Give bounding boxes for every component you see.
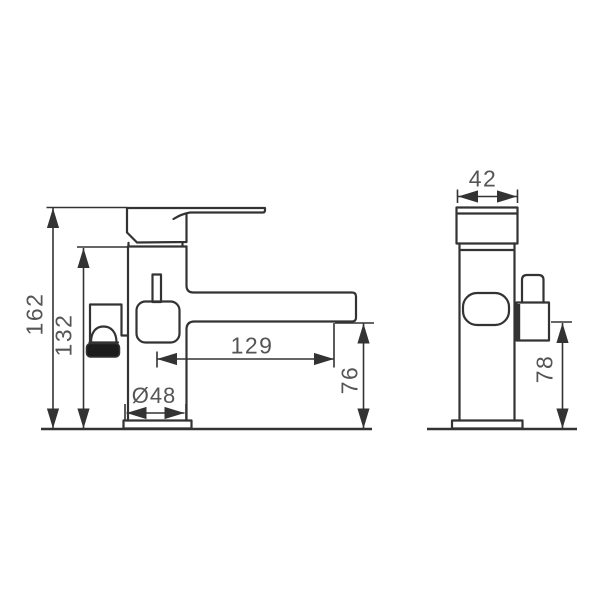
dimension-label-base-diameter: Ø48 bbox=[132, 385, 177, 407]
arrow-48-right bbox=[165, 407, 185, 419]
dimension-label-spout-height: 76 bbox=[339, 366, 362, 395]
arrow-78-top bbox=[556, 323, 568, 343]
sprayer-outline bbox=[90, 305, 128, 344]
technical-drawing-page: 162 132 129 Ø48 76 42 78 bbox=[0, 0, 600, 600]
front-view bbox=[87, 208, 357, 429]
arrow-162-bottom bbox=[47, 409, 59, 429]
technical-drawing bbox=[0, 0, 600, 600]
arrow-132-bottom bbox=[77, 409, 89, 429]
diverter-knob bbox=[137, 302, 180, 343]
spray-holder-clip bbox=[522, 275, 544, 303]
diverter-stem bbox=[153, 275, 162, 303]
arrow-129-left bbox=[157, 353, 177, 365]
arrow-76-top bbox=[357, 324, 369, 344]
arrow-132-top bbox=[77, 248, 89, 268]
arrow-42-right bbox=[497, 190, 517, 202]
arrow-76-bottom bbox=[357, 409, 369, 429]
arrow-78-bottom bbox=[556, 409, 568, 429]
extension-lines-front bbox=[47, 208, 375, 422]
dimension-label-body-width: 42 bbox=[469, 168, 498, 191]
dimension-label-spout-reach: 129 bbox=[231, 335, 274, 358]
side-base-plate bbox=[452, 421, 523, 429]
side-view bbox=[452, 208, 549, 429]
sprayer-foot bbox=[87, 344, 120, 358]
arrow-42-left bbox=[458, 190, 478, 202]
dimension-label-body-height: 132 bbox=[53, 314, 76, 357]
side-body bbox=[460, 244, 515, 421]
arrow-48-left bbox=[127, 407, 147, 419]
base-plate bbox=[124, 421, 192, 429]
front-view-dimensions bbox=[47, 208, 375, 429]
arrow-129-right bbox=[314, 353, 334, 365]
dimension-label-spray-outlet-height: 78 bbox=[534, 355, 557, 384]
handle-outline bbox=[127, 208, 265, 243]
spray-holder-box bbox=[517, 303, 550, 341]
dimension-label-total-height: 162 bbox=[24, 293, 47, 336]
arrow-162-top bbox=[47, 208, 59, 228]
side-spout-end bbox=[463, 293, 509, 325]
